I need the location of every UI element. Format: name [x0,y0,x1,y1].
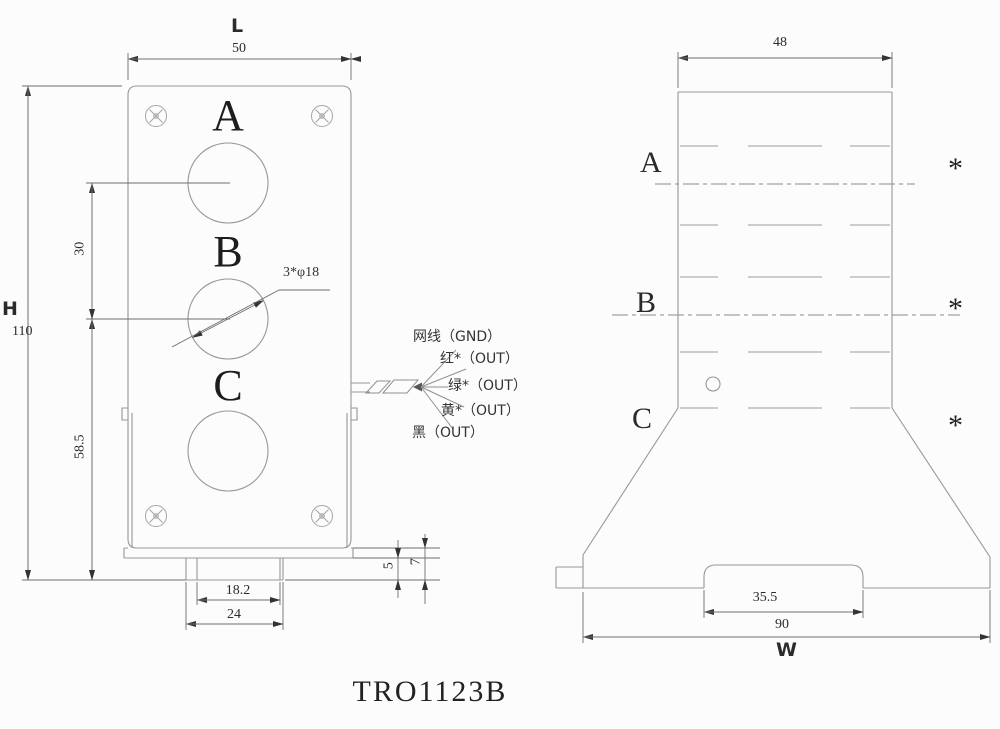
base-height-value: 7 [408,552,423,572]
front-height-letter: H [2,299,18,320]
drawing-title: TRO1123B [330,675,530,708]
screw-icon [146,106,167,127]
screw-icon [146,506,167,527]
front-width-letter: L [227,16,247,37]
side-view-dimensions [583,52,990,643]
hole-c-circle [188,411,268,491]
side-top-width-value: 48 [765,35,795,50]
hole-callout-text: 3*φ18 [283,265,319,280]
side-notch-width-value: 35.5 [740,590,790,605]
tab-height-value: 5 [381,556,396,576]
wire-label-yellow: 黄*（OUT） [441,404,520,419]
tab-inner-width-value: 18.2 [213,583,263,598]
front-height-value: 110 [12,324,32,339]
tab-outer-width-value: 24 [213,607,255,622]
hole-label-c: C [198,362,258,410]
side-base-width-letter: W [776,640,797,661]
side-section-c: C [632,402,652,435]
side-base-width-value: 90 [762,617,802,632]
section-a-marker: * [948,152,963,185]
front-width-value: 50 [224,41,254,56]
screw-icons [146,106,333,527]
side-view-centerlines [612,184,960,315]
section-b-marker: * [948,292,963,325]
hole-label-a: A [198,92,258,140]
hole-label-b: B [198,228,258,276]
hole-spacing-bottom-value: 58.5 [72,427,87,467]
wire-label-green: 绿*（OUT） [448,379,527,394]
side-section-a: A [640,146,662,179]
wire-label-black: 黑（OUT） [412,426,484,441]
screw-icon [312,106,333,127]
side-small-hole [706,377,720,391]
screw-icon [312,506,333,527]
hole-spacing-top-value: 30 [72,234,87,264]
engineering-drawing-page: L 50 H 110 30 58.5 A B C 3*φ18 18.2 24 5… [0,0,1000,729]
wire-label-red: 红*（OUT） [440,352,519,367]
side-view-hidden-lines [680,146,890,408]
section-c-marker: * [948,409,963,442]
wire-label-gnd: 网线（GND） [413,330,501,345]
side-view-outline [556,92,990,588]
side-section-b: B [636,286,656,319]
